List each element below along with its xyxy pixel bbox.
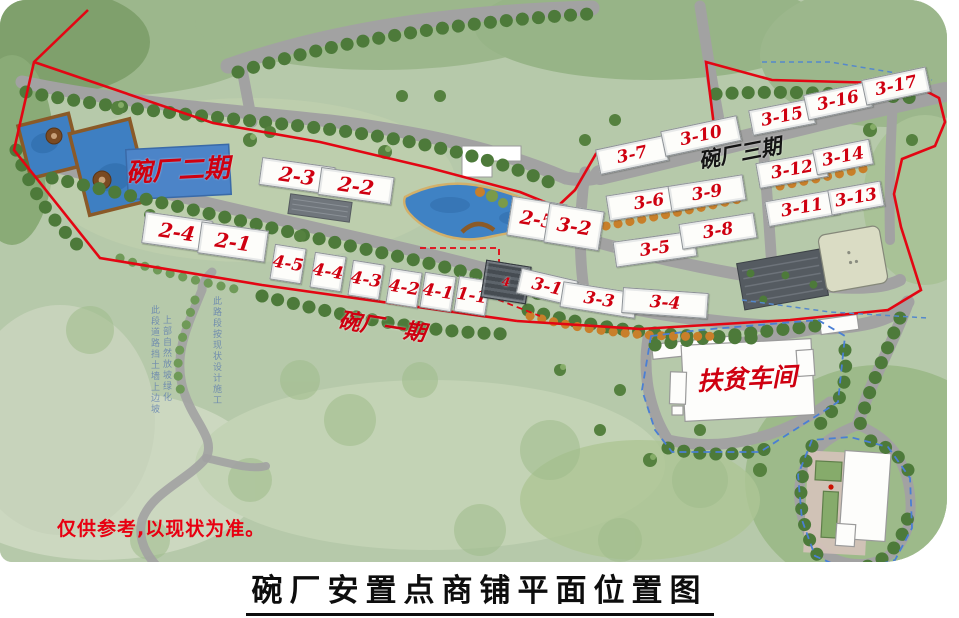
building-label-2-1: 2-1 (214, 230, 253, 255)
hall-building (817, 225, 888, 293)
building-label-4-2: 4-2 (388, 277, 421, 299)
building-label-3-13: 3-13 (834, 186, 879, 210)
title-band: 碗厂安置点商铺平面位置图 (0, 562, 959, 618)
building-label-3-2: 3-2 (556, 215, 593, 239)
road-note-3: 此路段按现状设计施工 (210, 296, 223, 406)
building-4-1[interactable]: 4-1 (419, 272, 456, 313)
page-title: 碗厂安置点商铺平面位置图 (246, 565, 714, 616)
building-label-2-4: 2-4 (158, 220, 197, 245)
page-margin (947, 0, 959, 562)
building-label-2-2: 2-2 (337, 174, 376, 199)
reference-note: 仅供参考,以现状为准。 (57, 514, 265, 541)
building-label-3-3: 3-3 (583, 289, 616, 311)
road-note-2: 上部自然放坡绿化 (160, 315, 173, 403)
building-label-4-4: 4-4 (312, 261, 345, 283)
building-label-4: 4 (501, 275, 511, 288)
building-label-3-17: 3-17 (873, 73, 918, 98)
building-label-4-3: 4-3 (350, 269, 383, 291)
building-3-2[interactable]: 3-2 (543, 203, 605, 251)
building-label-3-15: 3-15 (759, 105, 804, 130)
building-label-4-1: 4-1 (422, 281, 455, 303)
building-label-4-5: 4-5 (272, 253, 305, 275)
building-label-3-14: 3-14 (820, 145, 865, 170)
building-4-5[interactable]: 4-5 (269, 244, 306, 285)
building-label-3-4: 3-4 (649, 293, 681, 312)
building-label-3-1: 3-1 (530, 275, 564, 298)
building-label-3-9: 3-9 (691, 182, 724, 204)
building-label-3-6: 3-6 (633, 191, 666, 213)
building-4-3[interactable]: 4-3 (347, 260, 384, 301)
building-4-2[interactable]: 4-2 (385, 268, 422, 309)
site-plan-screenshot: 2-32-22-42-12-53-24-54-44-34-24-11-143-1… (0, 0, 959, 618)
building-label-3-5: 3-5 (639, 238, 672, 259)
area-label-workshop[interactable]: 扶贫车间 (696, 364, 797, 394)
building-label-3-11: 3-11 (780, 196, 825, 220)
site-plan-map: 2-32-22-42-12-53-24-54-44-34-24-11-143-1… (0, 0, 947, 562)
building-label-3-8: 3-8 (702, 220, 735, 242)
building-label-3-7: 3-7 (615, 143, 649, 166)
building-4-4[interactable]: 4-4 (309, 252, 346, 293)
compound-marker-dot (828, 484, 833, 489)
area-label-phase2[interactable]: 碗厂二期 (125, 155, 230, 186)
building-label-3-12: 3-12 (770, 158, 815, 182)
building-label-2-3: 2-3 (278, 164, 317, 189)
building-label-3-16: 3-16 (815, 88, 860, 113)
